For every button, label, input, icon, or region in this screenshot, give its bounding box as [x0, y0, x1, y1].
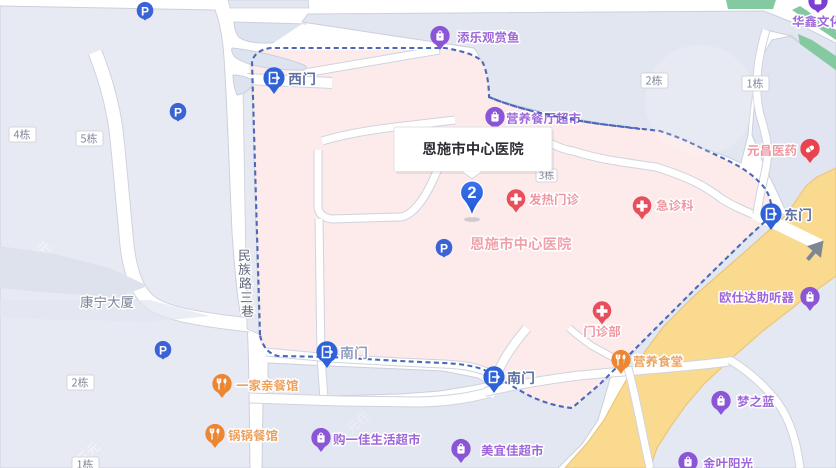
svg-text:2: 2: [467, 184, 476, 202]
